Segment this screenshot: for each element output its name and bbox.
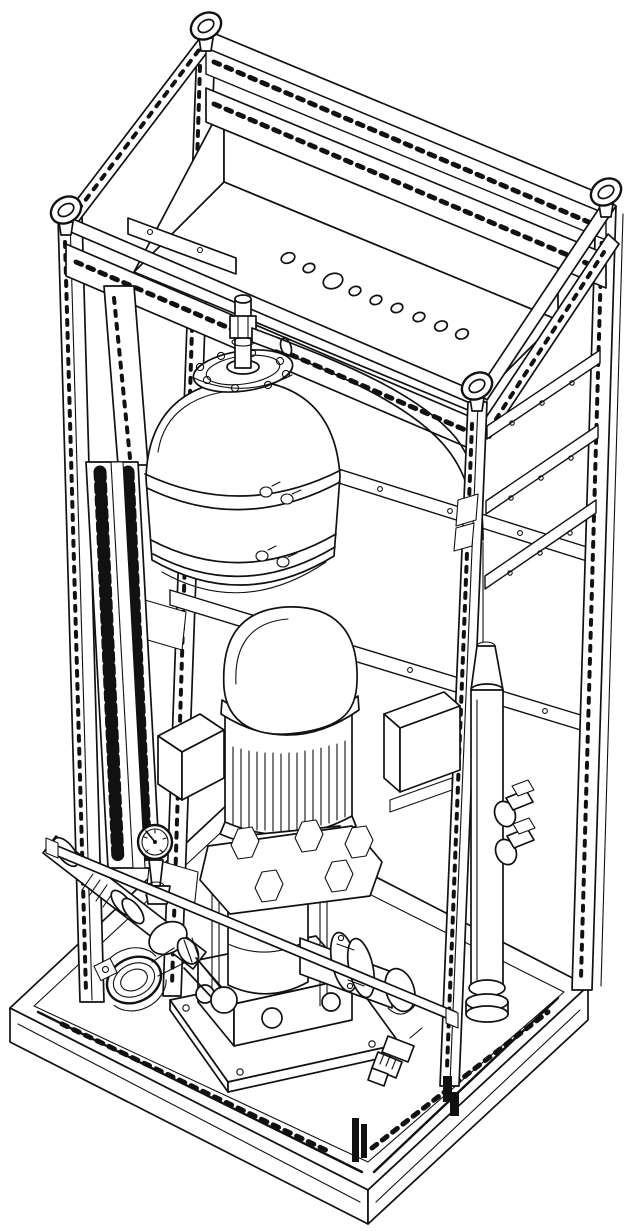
hose-clamp <box>454 523 474 551</box>
drawing-svg <box>0 0 634 1231</box>
electrical-box <box>384 692 460 812</box>
technical-drawing <box>0 0 634 1231</box>
mid-upright <box>104 286 148 465</box>
dome-nut <box>322 993 340 1011</box>
motor-junction-box <box>158 714 224 800</box>
post-foot <box>450 1092 459 1116</box>
dome-nut <box>262 1008 282 1028</box>
right-post <box>572 206 623 990</box>
pipe-elbow <box>211 987 237 1013</box>
corner-bracket <box>361 1124 367 1158</box>
motor <box>220 607 359 847</box>
motor-fan-cover <box>224 607 357 734</box>
corner-bracket <box>352 1118 359 1162</box>
